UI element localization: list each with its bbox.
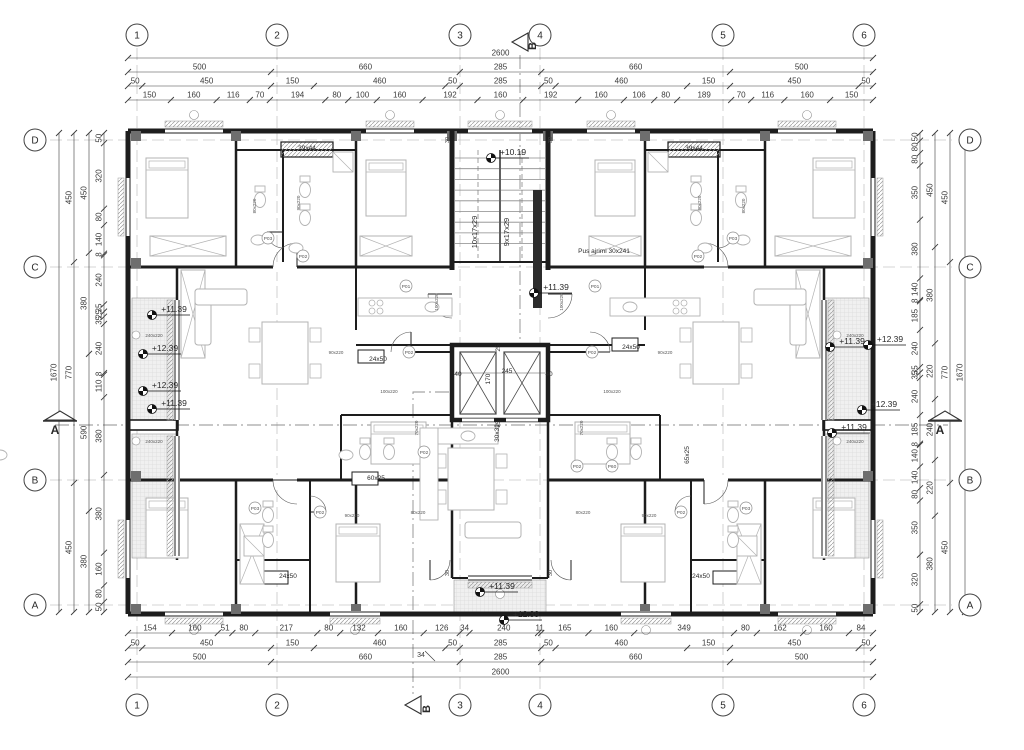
dimension-label: 160 <box>494 91 508 100</box>
dimension-label: 320 <box>911 572 920 586</box>
window-sill <box>118 178 124 236</box>
door-size-label: 80x220 <box>252 198 257 213</box>
dimension-label: 80 <box>95 212 104 221</box>
door-size-label: 90x220 <box>697 195 702 210</box>
sofa <box>465 522 521 538</box>
sink <box>339 450 353 460</box>
dimension-label: 150 <box>143 91 157 100</box>
dimension-label: 84 <box>857 624 866 633</box>
window-tag <box>496 111 505 120</box>
dimension-label: 50 <box>911 603 920 612</box>
door-size-label: 70x220 <box>414 420 419 435</box>
dimension-label: 660 <box>359 63 373 72</box>
bed <box>813 158 855 218</box>
toilet-tank <box>728 526 738 532</box>
dimension-label: 192 <box>443 91 457 100</box>
dimension-label: 80 <box>661 91 670 100</box>
dimension-label: 192 <box>544 91 558 100</box>
dimension-label: 50 <box>131 639 140 648</box>
dimension-label: 450 <box>926 183 935 197</box>
dimension-label: 8 <box>95 371 104 376</box>
window-sill <box>587 121 635 127</box>
window-sill <box>167 436 173 556</box>
sink <box>0 450 7 460</box>
grid-bubble-label: C <box>966 263 973 274</box>
dimension-label: 80 <box>332 91 341 100</box>
window-sill <box>118 520 124 578</box>
dimension-label: 140 <box>911 470 920 484</box>
door-size-label: 80x220 <box>411 510 426 515</box>
dimension-label: 50 <box>911 132 920 141</box>
dimension-label: 160 <box>394 624 408 633</box>
grid-bubble-label: 4 <box>537 701 543 712</box>
toilet-tank <box>736 186 746 192</box>
elevator-dim-label: 170 <box>485 373 492 384</box>
dimension-label: 150 <box>845 91 859 100</box>
wall-pier <box>863 131 873 141</box>
dimension-label: 51 <box>221 624 230 633</box>
toilet-tank <box>263 501 273 507</box>
dimension-label: 460 <box>615 639 629 648</box>
door-size-label: 90x220 <box>642 513 657 518</box>
door-gap <box>273 262 297 272</box>
window-sill <box>877 520 883 578</box>
elevator-dim-label: 40 <box>454 371 462 378</box>
dimension-label: 150 <box>286 639 300 648</box>
dimension-label: 160 <box>188 624 202 633</box>
door-tag-label: P02 <box>694 254 703 260</box>
dimension-label: 2600 <box>492 668 510 677</box>
dimension-label: 220 <box>926 481 935 495</box>
window-sill <box>366 121 414 127</box>
duct-box <box>713 571 739 584</box>
wall-note-label: 30 <box>445 570 451 576</box>
dimension-label: 160 <box>393 91 407 100</box>
stair-label: 10x17x29 <box>470 216 479 249</box>
shaft-label: 24x50 <box>369 356 387 363</box>
dimension-label: 140 <box>911 449 920 463</box>
elevator-dim-label: 25 <box>495 344 502 352</box>
dimension-label: 450 <box>65 540 74 554</box>
elevation-label: +11.39 <box>543 282 569 292</box>
dimension-label: 80 <box>911 489 920 498</box>
wall-pier <box>231 604 241 614</box>
dimension-label: 8 <box>911 442 920 447</box>
dimension-label: 500 <box>193 63 207 72</box>
dimension-label: 450 <box>65 190 74 204</box>
elevation-label: +11.39 <box>489 581 515 591</box>
grid-bubble-label: 2 <box>274 701 280 712</box>
dimension-label: 150 <box>702 639 716 648</box>
dimension-label: 70 <box>737 91 746 100</box>
window-tag-circle <box>132 331 140 339</box>
chair <box>310 364 321 378</box>
shaft-label: 60x25 <box>367 475 385 482</box>
elevator-dim-label: 25 <box>495 420 502 428</box>
wall-pier <box>131 604 141 614</box>
door-tag-label: P03 <box>729 236 738 242</box>
dimension-label: 380 <box>80 554 89 568</box>
toilet-tank <box>300 176 310 182</box>
toilet-tank <box>255 186 265 192</box>
dimension-label: 194 <box>291 91 305 100</box>
door-size-label: 100x220 <box>380 389 398 394</box>
window-sill <box>468 121 532 127</box>
dimension-label: 450 <box>941 540 950 554</box>
leader-note: 34 <box>417 652 425 659</box>
dimension-label: 590 <box>80 425 89 439</box>
dimension-label: 350 <box>911 520 920 534</box>
dimension-label: 240 <box>95 273 104 287</box>
bed <box>336 524 380 582</box>
toilet <box>384 445 395 460</box>
dimension-label: 70 <box>255 91 264 100</box>
wall-pier <box>131 131 141 141</box>
chair <box>741 328 752 342</box>
dimension-label: 450 <box>788 639 802 648</box>
dimension-label: 50 <box>448 639 457 648</box>
window-tag <box>803 111 812 120</box>
dimension-label: 80 <box>911 154 920 163</box>
dimension-label: 162 <box>773 624 787 633</box>
shaft-label: 24x50 <box>692 573 710 580</box>
elevation-label: +12.39 <box>152 343 179 353</box>
window-size-label: 240x220 <box>145 333 163 338</box>
wall-pier <box>863 258 873 268</box>
dimension-label: 380 <box>911 242 920 256</box>
dimension-label: 240 <box>911 341 920 355</box>
elevator-dim-label: 40 <box>545 371 553 378</box>
window-sill <box>828 300 834 420</box>
dimension-label: 50 <box>861 77 870 86</box>
dimension-label: 285 <box>494 63 508 72</box>
dimension-label: 35 <box>95 315 104 324</box>
toilet-tank <box>384 438 394 444</box>
dimension-label: 165 <box>558 624 572 633</box>
wall-pier <box>131 471 141 481</box>
dimension-label: 80 <box>741 624 750 633</box>
dimension-label: 80 <box>324 624 333 633</box>
dimension-label: 154 <box>143 624 157 633</box>
dimension-label: 770 <box>941 365 950 379</box>
dimension-label: 380 <box>95 429 104 443</box>
elevation-marker-quad <box>530 293 535 298</box>
elevation-label: +12.39 <box>871 399 898 409</box>
dimension-label: 660 <box>629 653 643 662</box>
door-size-label: 100x220 <box>603 389 621 394</box>
toilet <box>263 533 274 548</box>
wall-pier <box>863 604 873 614</box>
stair-label: 9x17x29 <box>502 218 511 246</box>
dimension-label: 132 <box>352 624 366 633</box>
grid-bubble-label: D <box>966 136 973 147</box>
dimension-label: 80 <box>95 589 104 598</box>
toilet <box>300 183 311 198</box>
toilet-tank <box>728 501 738 507</box>
elevator-dim-label: 245 <box>502 368 513 375</box>
bed <box>366 160 406 216</box>
section-a-right-label: A <box>936 423 945 437</box>
toilet-tank <box>691 176 701 182</box>
door-size-label: 70x220 <box>579 420 584 435</box>
dimension-label: 285 <box>494 653 508 662</box>
grid-bubble-label: 3 <box>457 31 463 42</box>
window-tag <box>386 111 395 120</box>
dimension-label: 660 <box>359 653 373 662</box>
door-tag-label: P03 <box>742 506 751 512</box>
core-label: Pus ajrimi 30x241 <box>578 248 630 255</box>
drawing-sheet: 2600500660285660500504501504605028550460… <box>0 0 1024 750</box>
chair <box>680 328 691 342</box>
grid-bubble-label: 6 <box>861 31 867 42</box>
toilet <box>631 445 642 460</box>
grid-bubble-label: 3 <box>457 701 463 712</box>
dimension-label: 160 <box>187 91 201 100</box>
grid-bubble-label: A <box>967 601 974 612</box>
door-tag-label: P02 <box>420 450 429 456</box>
dimension-label: 500 <box>795 63 809 72</box>
toilet-tank <box>263 526 273 532</box>
window-tag-circle <box>132 437 140 445</box>
dimension-label: 380 <box>95 507 104 521</box>
toilet <box>607 445 618 460</box>
door-tag-label: P03 <box>251 506 260 512</box>
dimension-label: 80 <box>911 142 920 151</box>
dimension-label: 240 <box>911 389 920 403</box>
dimension-label: 160 <box>819 624 833 633</box>
door-tag-label: P01 <box>402 284 411 290</box>
dimension-label: 35 <box>911 370 920 379</box>
shaft-label: 65x25 <box>684 446 691 464</box>
dimension-label: 116 <box>761 91 774 100</box>
toilet-tank <box>631 438 641 444</box>
door-size-label: 100x220 <box>434 293 439 311</box>
wall-note-label: 30 <box>548 570 554 576</box>
balcony-divider-slab <box>128 420 178 430</box>
sofa <box>754 289 806 305</box>
dimension-label: 460 <box>615 77 629 86</box>
wall-pier <box>131 258 141 268</box>
window-sill <box>778 121 836 127</box>
chair <box>496 490 507 504</box>
door-tag-label: P02 <box>588 350 597 356</box>
grid-bubble-label: 6 <box>861 701 867 712</box>
section-b-bottom-arrow <box>405 696 421 714</box>
window-sill <box>877 178 883 236</box>
dimension-label: 150 <box>702 77 716 86</box>
grid-bubble-label: 4 <box>537 31 543 42</box>
dimension-label: 100 <box>356 91 370 100</box>
dimension-label: 50 <box>131 77 140 86</box>
door-tag-label: P02 <box>299 254 308 260</box>
elevation-label: +12.39 <box>877 334 904 344</box>
door-tag-label: P60 <box>608 464 617 470</box>
toilet <box>728 508 739 523</box>
window-sill <box>828 436 834 556</box>
shaft-label: 24x50 <box>622 344 640 351</box>
toilet-tank <box>360 438 370 444</box>
elevation-marker-quad <box>487 158 492 163</box>
elevation-label: +12.39 <box>513 609 540 619</box>
shaft-label: 39x44 <box>298 145 316 152</box>
window-tag <box>607 111 616 120</box>
grid-bubble-label: B <box>967 476 974 487</box>
dimension-label: 217 <box>280 624 294 633</box>
toilet-tank <box>607 438 617 444</box>
dimension-label: 50 <box>861 639 870 648</box>
dimension-label: 460 <box>373 77 387 86</box>
toilet <box>360 445 371 460</box>
door-size-label: 90x220 <box>345 513 360 518</box>
dimension-label: 660 <box>629 63 643 72</box>
window-size-label: 240x220 <box>846 439 864 444</box>
dimension-label: 50 <box>448 77 457 86</box>
section-a-left-label: A <box>51 423 60 437</box>
door-size-label: 90x220 <box>296 195 301 210</box>
wall-pier <box>760 604 770 614</box>
chair <box>249 364 260 378</box>
window-tag-circle <box>833 437 841 445</box>
dimension-label: 450 <box>941 190 950 204</box>
dimension-label: 126 <box>435 624 449 633</box>
bed <box>621 524 665 582</box>
wall-note-label: 30 <box>548 137 554 143</box>
dimension-label: 2600 <box>492 49 510 58</box>
elevation-label: +11.39 <box>161 304 187 314</box>
window-sill <box>165 121 223 127</box>
dimension-label: 240 <box>926 422 935 436</box>
dimension-label: 8 <box>95 252 104 257</box>
dimension-label: 50 <box>544 639 553 648</box>
chair <box>496 454 507 468</box>
section-b-top-label: B <box>527 42 539 50</box>
wall-note-label: 30 <box>445 137 451 143</box>
dimension-label: 160 <box>594 91 608 100</box>
dimension-label: 106 <box>632 91 646 100</box>
door-tag-label: P02 <box>573 464 582 470</box>
door-size-label: 100x220 <box>559 293 564 311</box>
dining-table <box>693 322 739 384</box>
elevation-marker-quad <box>491 154 496 159</box>
section-b-bottom-label: B <box>421 705 433 713</box>
dimension-label: 450 <box>788 77 802 86</box>
dimension-label: 450 <box>200 77 214 86</box>
grid-bubble-label: A <box>32 601 39 612</box>
dimension-label: 380 <box>926 288 935 302</box>
door-gap <box>704 475 728 485</box>
door-size-label: 90x220 <box>658 350 673 355</box>
dimension-label: 350 <box>911 185 920 199</box>
elevation-label: +12.39 <box>152 380 179 390</box>
door-size-label: 90x220 <box>329 350 344 355</box>
dimension-label: 185 <box>911 422 920 436</box>
door-swing-arc <box>551 560 571 580</box>
door-tag-label: P02 <box>677 510 686 516</box>
dimension-label: 1670 <box>50 363 59 381</box>
door-tag-label: P02 <box>316 510 325 516</box>
section-a-right-arrow <box>930 411 960 420</box>
dimension-label: 500 <box>193 653 207 662</box>
dimension-label: 450 <box>200 639 214 648</box>
dimension-label: 116 <box>227 91 240 100</box>
window-sill <box>621 618 671 624</box>
door-tag-label: P02 <box>405 350 414 356</box>
shaft-label: 39x44 <box>685 145 703 152</box>
wall-pier <box>760 131 770 141</box>
dimension-label: 140 <box>911 282 920 296</box>
shaft-label: 24x50 <box>279 573 297 580</box>
dimension-label: 220 <box>926 364 935 378</box>
sofa <box>195 289 247 305</box>
sink <box>623 302 637 312</box>
grid-bubble-label: C <box>31 263 38 274</box>
dining-table <box>448 448 494 510</box>
dimension-label: 185 <box>911 308 920 322</box>
wall-pier <box>640 131 650 141</box>
bed <box>146 158 188 218</box>
dimension-label: 80 <box>239 624 248 633</box>
dimension-label: 500 <box>795 653 809 662</box>
dimension-label: 1670 <box>956 363 965 381</box>
dimension-label: 189 <box>697 91 711 100</box>
elevator-shaft-box <box>452 345 548 420</box>
dimension-label: 349 <box>677 624 691 633</box>
section-a-left-arrow <box>45 411 75 420</box>
dimension-label: 160 <box>801 91 815 100</box>
elevation-label: +10.19 <box>500 147 527 157</box>
door-tag-label: P01 <box>591 284 600 290</box>
grid-bubble-label: 2 <box>274 31 280 42</box>
wall-pier <box>231 131 241 141</box>
dimension-label: 285 <box>494 639 508 648</box>
chair <box>680 364 691 378</box>
dimension-label: 285 <box>494 77 508 86</box>
dimension-label: 8 <box>911 298 920 303</box>
dimension-label: 50 <box>544 77 553 86</box>
kitchen-counter <box>420 428 438 520</box>
chair <box>249 328 260 342</box>
toilet <box>691 211 702 226</box>
window-size-label: 240x220 <box>846 333 864 338</box>
toilet <box>728 533 739 548</box>
dimension-label: 160 <box>95 562 104 576</box>
toilet <box>263 508 274 523</box>
dimension-label: 34 <box>460 624 469 633</box>
grid-bubble-label: D <box>31 136 38 147</box>
door-size-label: 80x220 <box>741 198 746 213</box>
floor-plan-canvas: 2600500660285660500504501504605028550460… <box>0 0 1024 750</box>
bed <box>595 160 635 216</box>
window-tag <box>190 111 199 120</box>
door-size-label: 80x220 <box>576 510 591 515</box>
dimension-label: 770 <box>65 365 74 379</box>
door-tag-label: P03 <box>264 236 273 242</box>
stair-elevator-core <box>452 131 548 420</box>
elevation-label: +11.39 <box>161 398 187 408</box>
dimension-label: 380 <box>926 557 935 571</box>
chair <box>741 364 752 378</box>
dimension-label: 160 <box>605 624 619 633</box>
dimension-label: 460 <box>373 639 387 648</box>
wall-pier <box>351 131 361 141</box>
dimension-label: 320 <box>95 169 104 183</box>
dining-table <box>262 322 308 384</box>
wall-pier <box>863 471 873 481</box>
dimension-label: 450 <box>80 186 89 200</box>
grid-bubble-label: 5 <box>720 31 726 42</box>
grid-bubble-label: 5 <box>720 701 726 712</box>
grid-bubble-label: B <box>32 476 39 487</box>
